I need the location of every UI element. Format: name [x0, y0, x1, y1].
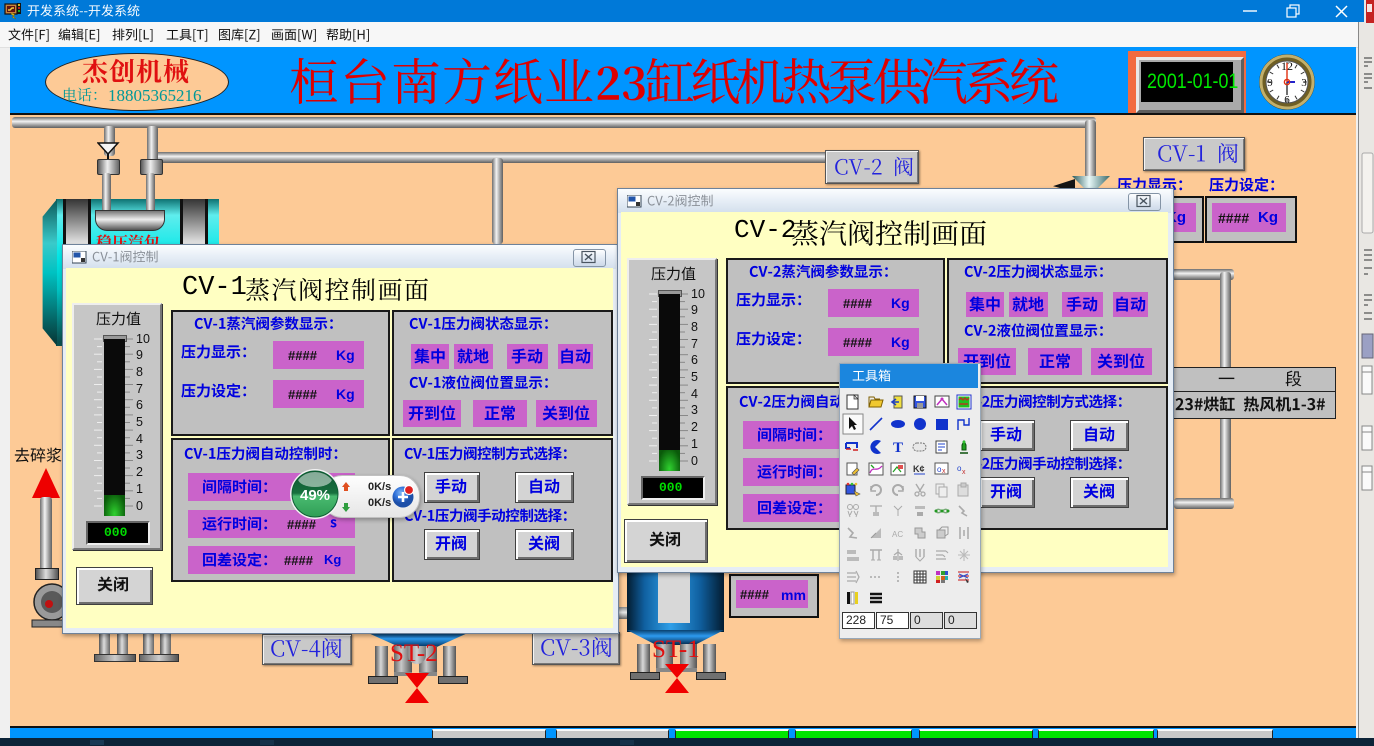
svg-text:3: 3 [1301, 77, 1307, 89]
svg-text:6: 6 [1284, 94, 1290, 106]
svg-text:49%: 49% [300, 487, 330, 504]
svg-text:9: 9 [1267, 77, 1273, 89]
